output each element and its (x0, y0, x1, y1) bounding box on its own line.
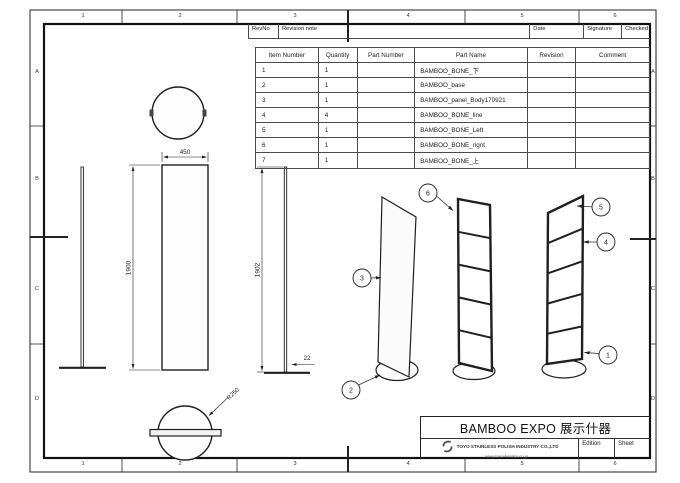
grid-label-right-b: B (651, 177, 655, 183)
grid-label-top-2: 2 (178, 14, 181, 20)
cell-part-name: BAMBOO_base (415, 78, 527, 92)
header-revision: Revision (528, 48, 577, 62)
cell-item: 4 (256, 108, 319, 122)
grid-label-right-d: D (651, 397, 655, 403)
cell-comment (576, 63, 649, 77)
company-cell: TOYO STAINLESS POLISH INDUSTRY CO.,LTD w… (421, 439, 578, 459)
table-row: 7 1 BAMBOO_BONE_上 (256, 153, 649, 168)
cell-qty: 4 (319, 108, 358, 122)
revision-table: RevNo Revision note Date Signature Check… (248, 24, 650, 39)
cell-qty: 1 (319, 153, 358, 168)
company-logo-icon (441, 440, 454, 453)
table-row: 2 1 BAMBOO_base (256, 78, 649, 93)
cell-comment (576, 123, 649, 137)
balloon-1: 1 (606, 353, 610, 360)
top-view (150, 87, 207, 139)
cell-comment (576, 78, 649, 92)
cell-part-name: BAMBOO_BONE_Left (415, 123, 527, 137)
table-row: 4 4 BAMBOO_BONE_line (256, 108, 649, 123)
grid-label-left-c: C (35, 287, 39, 293)
iso-frame-view-mid (453, 199, 495, 380)
header-item-number: Item Number (256, 48, 319, 62)
cell-revision (528, 138, 577, 152)
header-comment: Comment (576, 48, 649, 62)
bottom-view: R250 (150, 387, 241, 460)
grid-label-bottom-1: 1 (81, 462, 84, 468)
side-view-dimensioned: 1902 22 (255, 167, 316, 373)
front-view: 450 1900 (126, 149, 209, 370)
balloon-5: 5 (599, 205, 603, 212)
cell-part-number (358, 108, 416, 122)
grid-label-top-5: 5 (520, 14, 523, 20)
cell-part-number (358, 78, 416, 92)
cell-comment (576, 108, 649, 122)
company-website: www.toyo-kenma.co.jp (485, 454, 528, 459)
grid-label-bottom-2: 2 (178, 462, 181, 468)
drawing-title: BAMBOO EXPO 展示什器 (421, 417, 650, 438)
grid-label-right-c: C (651, 287, 655, 293)
cell-revision (528, 108, 577, 122)
grid-label-right-a: A (651, 70, 655, 76)
header-part-name: Part Name (415, 48, 527, 62)
cell-revision (528, 153, 577, 168)
grid-label-top-6: 6 (613, 14, 616, 20)
dim-panel-height: 1900 (126, 260, 133, 275)
parts-table-header: Item Number Quantity Part Number Part Na… (256, 48, 649, 63)
edition-cell: Edition (578, 439, 614, 459)
cell-qty: 1 (319, 138, 358, 152)
grid-label-bottom-3: 3 (293, 462, 296, 468)
rev-col-note: Revision note (279, 24, 530, 38)
sheet-cell: Sheet (614, 439, 650, 459)
grid-label-left-a: A (35, 70, 39, 76)
cell-part-name: BAMBOO_BONE_下 (415, 63, 527, 77)
cell-item: 6 (256, 138, 319, 152)
cell-part-number (358, 63, 416, 77)
grid-label-bottom-5: 5 (520, 462, 523, 468)
cell-item: 7 (256, 153, 319, 168)
cell-part-name: BAMBOO_BONE_line (415, 108, 527, 122)
cell-comment (576, 93, 649, 107)
grid-label-top-1: 1 (81, 14, 84, 20)
cell-revision (528, 93, 577, 107)
grid-label-left-b: B (35, 177, 39, 183)
dim-panel-width: 450 (180, 149, 191, 156)
cell-part-name: BAMBOO_panel_Body170921 (415, 93, 527, 107)
balloon-3: 3 (360, 276, 364, 283)
balloon-2: 2 (349, 388, 353, 395)
title-block: BAMBOO EXPO 展示什器 TOYO STAINLESS POLISH I… (420, 416, 650, 458)
rev-col-checked: Checked (622, 24, 650, 38)
cell-part-name: BAMBOO_BONE_上 (415, 153, 527, 168)
dim-base-thickness: 22 (304, 356, 311, 362)
cell-part-number (358, 93, 416, 107)
table-row: 1 1 BAMBOO_BONE_下 (256, 63, 649, 78)
cell-item: 2 (256, 78, 319, 92)
rev-col-signature: Signature (584, 24, 622, 38)
balloon-4: 4 (604, 240, 608, 247)
dim-base-radius: R250 (226, 387, 241, 402)
iso-frame-view-right (542, 196, 586, 378)
cell-qty: 1 (319, 78, 358, 92)
cell-item: 3 (256, 93, 319, 107)
table-row: 5 1 BAMBOO_BONE_Left (256, 123, 649, 138)
cell-qty: 1 (319, 93, 358, 107)
grid-label-top-4: 4 (406, 14, 409, 20)
table-row: 6 1 BAMBOO_BONE_rignt (256, 138, 649, 153)
cell-revision (528, 123, 577, 137)
balloon-6: 6 (426, 191, 430, 198)
rev-col-date: Date (530, 24, 584, 38)
iso-panel-view (376, 197, 418, 381)
cell-part-name: BAMBOO_BONE_rignt (415, 138, 527, 152)
table-row: 3 1 BAMBOO_panel_Body170921 (256, 93, 649, 108)
cell-part-number (358, 138, 416, 152)
cell-part-number (358, 123, 416, 137)
cell-item: 5 (256, 123, 319, 137)
drawing-sheet: 450 1900 1902 22 R250 (0, 0, 680, 483)
cell-item: 1 (256, 63, 319, 77)
grid-label-left-d: D (35, 397, 39, 403)
parts-table: Item Number Quantity Part Number Part Na… (255, 47, 650, 169)
cell-qty: 1 (319, 63, 358, 77)
header-quantity: Quantity (319, 48, 358, 62)
company-name: TOYO STAINLESS POLISH INDUSTRY CO.,LTD (457, 444, 559, 449)
cell-qty: 1 (319, 123, 358, 137)
dim-overall-height: 1902 (255, 262, 262, 277)
cell-part-number (358, 153, 416, 168)
cell-comment (576, 153, 649, 168)
side-view-left (59, 167, 106, 368)
cell-comment (576, 138, 649, 152)
cell-revision (528, 78, 577, 92)
rev-col-revno: RevNo (249, 24, 279, 38)
grid-label-bottom-4: 4 (406, 462, 409, 468)
header-part-number: Part Number (358, 48, 416, 62)
grid-label-bottom-6: 6 (613, 462, 616, 468)
cell-revision (528, 63, 577, 77)
grid-label-top-3: 3 (293, 14, 296, 20)
